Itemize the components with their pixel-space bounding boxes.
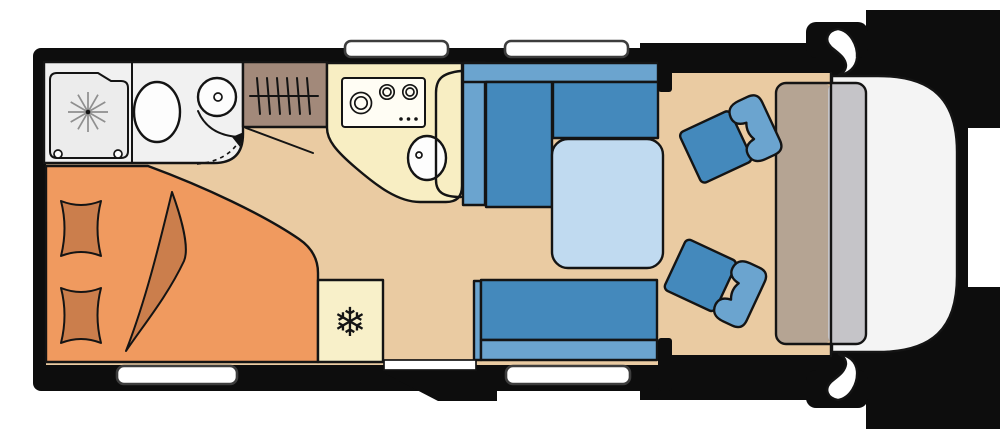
floorplan-canvas: ❄ [0, 0, 1000, 429]
window-bottom-bed [117, 366, 237, 384]
wall-stub-top [658, 48, 672, 92]
wall-stub-bottom [658, 338, 672, 391]
dinette-bench-rear-backrest [481, 340, 657, 360]
motorhome-floorplan: ❄ [0, 0, 1000, 429]
window-bottom-dinette [506, 366, 630, 384]
washbasin-drain [214, 93, 222, 101]
background-notch [968, 128, 1000, 287]
kitchen-tap [416, 152, 422, 158]
shower-jet-left [54, 150, 62, 158]
dinette-table [552, 139, 663, 268]
shower-tray [50, 73, 128, 158]
dashboard-inner [776, 83, 832, 344]
entry-door [384, 360, 476, 370]
wardrobe [243, 62, 327, 127]
window-top-dinette [505, 41, 628, 57]
dinette-seat-front [486, 82, 552, 207]
shower-jet-right [114, 150, 122, 158]
dinette-backrest-top [463, 63, 658, 82]
dinette-seat-corner [553, 82, 658, 138]
snowflake-icon: ❄ [333, 300, 367, 346]
pillow-bottom [61, 288, 101, 343]
dinette-backrest-side [463, 63, 485, 205]
windshield-band [828, 83, 866, 344]
kitchen-sink [408, 136, 446, 180]
dinette-bench-rear [481, 280, 657, 340]
window-top-kitchen [345, 41, 448, 57]
pillow-top [61, 201, 101, 256]
toilet [134, 82, 180, 142]
